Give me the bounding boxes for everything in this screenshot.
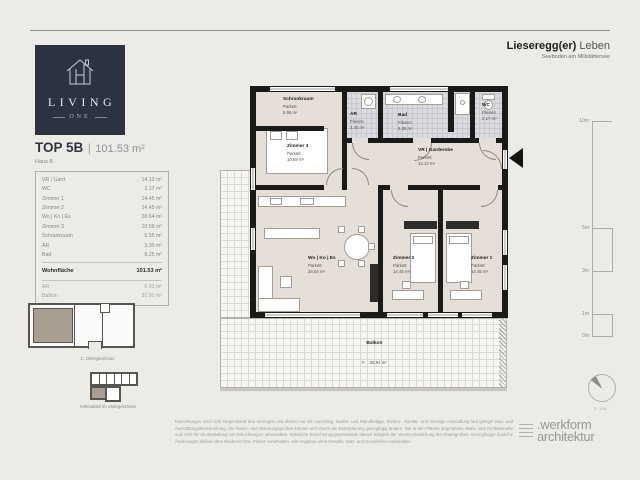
wall-segment (448, 92, 454, 132)
table-row: Balkon32.91 m² (42, 292, 162, 301)
room-area: 2.17 m² (482, 116, 497, 122)
table-row: Zimmer 310.59 m² (42, 223, 162, 232)
scale-label: 3m (575, 268, 589, 274)
cellar-cell (92, 374, 100, 384)
scale-bar-line (612, 228, 613, 272)
row-area: 3.30 m² (144, 242, 162, 251)
row-area: 6.01 m² (144, 283, 162, 292)
unit-separator: | (88, 141, 91, 155)
kitchen-island-symbol (264, 228, 320, 239)
balcony-hatch-edge (499, 319, 506, 387)
entrance-arrow-icon (509, 148, 523, 168)
row-area: 10.59 m² (142, 223, 162, 232)
wall-segment (250, 86, 256, 318)
studio-logo: .werkform architektur (537, 419, 594, 443)
unit-name: TOP 5B (35, 140, 83, 155)
room-label-vr-garderobe: VR | Garderobe Parkett 14.13 m² (418, 148, 453, 167)
row-area: 32.91 m² (142, 292, 162, 301)
cooktop-symbol (270, 198, 282, 205)
table-separator (42, 280, 162, 281)
address-line (519, 436, 533, 437)
cellar-cell (107, 374, 115, 384)
room-label-schrankraum: Schrankraum Parkett 5.55 m² (283, 97, 314, 116)
cellar-cell (105, 386, 121, 402)
room-name: Zimmer 2 (393, 256, 414, 263)
key-plan-notch (88, 341, 102, 349)
basin-symbol (418, 96, 426, 103)
row-area: 14.45 m² (142, 195, 162, 204)
window-symbol (387, 313, 423, 317)
key-plan-floor-caption: 1. Obergeschoss (60, 356, 135, 361)
kitchen-sink-symbol (300, 198, 314, 205)
chair-symbol (402, 281, 411, 289)
wall-segment (368, 138, 383, 143)
room-area: 8.25 m² (398, 126, 413, 132)
unit-area: 101.53 m² (95, 143, 145, 155)
washing-machine-drum-symbol (364, 97, 373, 106)
entrance-opening (503, 150, 507, 169)
room-area: 14.13 m² (418, 161, 453, 167)
room-label-zimmer1: Zimmer 1 Parkett 14.45 m² (471, 256, 492, 275)
cellar-cell (122, 374, 130, 384)
wardrobe-symbol (446, 221, 479, 229)
window-symbol (462, 313, 492, 317)
room-label-bad: Bad Fliesen 8.25 m² (398, 113, 413, 132)
sofa-symbol (258, 298, 300, 312)
row-name: Schrankraum (42, 232, 73, 241)
room-area: 3.30 m² (350, 125, 365, 131)
table-row: WC2.17 m² (42, 185, 162, 194)
pillow-symbol (286, 131, 298, 140)
room-name: AR (350, 112, 365, 119)
table-row: VR | Gard.14.13 m² (42, 176, 162, 185)
wall-segment (378, 185, 383, 318)
table-row: AR3.30 m² (42, 242, 162, 251)
brand-name: LIVING (48, 95, 116, 110)
scale-label: 0m (575, 333, 589, 339)
address-line (519, 428, 533, 429)
room-area: 5.55 m² (283, 110, 314, 116)
wall-segment (383, 138, 413, 143)
wardrobe-symbol (370, 264, 378, 302)
wall-segment (408, 185, 480, 190)
desk-symbol (392, 290, 424, 300)
room-name: VR | Garderobe (418, 148, 453, 155)
cellar-cell (130, 374, 137, 384)
scale-note: 1 : 100 (578, 406, 622, 411)
key-plan-cellar (88, 368, 140, 398)
address-line (519, 424, 533, 425)
wall-segment (470, 92, 475, 138)
table-row: AR6.01 m² (42, 283, 162, 292)
room-name: WC (482, 103, 497, 110)
room-name: Schrankraum (283, 97, 314, 104)
scale-tick (592, 121, 612, 122)
cellar-compartments (90, 372, 138, 386)
chair-symbol (460, 281, 469, 289)
room-material: F. (362, 360, 365, 365)
wall-segment (431, 138, 479, 143)
room-area: 32.91 m² (370, 360, 387, 365)
scale-label: 1m (575, 311, 589, 317)
scale-label: 5m (575, 225, 589, 231)
row-area: 8.25 m² (144, 251, 162, 260)
table-row: Schrankraum5.55 m² (42, 232, 162, 241)
dash-right (95, 117, 107, 118)
room-area-table: VR | Gard.14.13 m² WC2.17 m² Zimmer 114.… (35, 171, 169, 306)
row-name: AR (42, 283, 49, 292)
wall-segment (256, 126, 324, 131)
key-plan-floor (28, 303, 135, 348)
brand-subname-text: ONE (69, 114, 90, 120)
legal-disclaimer: Einrichtungen sind nicht Gegenstand des … (175, 419, 513, 446)
project-title-light: Leben (576, 40, 610, 52)
wall-segment (438, 185, 443, 318)
row-name: WC (42, 185, 51, 194)
row-name: Zimmer 3 (42, 223, 64, 232)
studio-address-lines (519, 424, 533, 440)
key-plan-wall (74, 305, 75, 346)
row-name: Wo | Ko | Es (42, 213, 71, 222)
chair-symbol (358, 226, 365, 233)
room-label-wc: WC Fliesen 2.17 m² (482, 103, 497, 122)
window-symbol (503, 230, 507, 255)
row-name: AR (42, 242, 49, 251)
wardrobe-symbol (404, 221, 437, 229)
unit-title-line: TOP 5B | 101.53 m² (35, 139, 145, 157)
scale-tick (592, 271, 612, 272)
table-row: Wo | Ko | Es28.64 m² (42, 213, 162, 222)
pillow-symbol (270, 131, 282, 140)
row-area: 14.13 m² (142, 176, 162, 185)
window-symbol (390, 87, 448, 91)
pillow-symbol (413, 236, 433, 244)
basin-symbol (393, 96, 401, 103)
window-symbol (265, 313, 360, 317)
total-area: 101.53 m² (137, 265, 163, 277)
room-area: 10.59 m² (287, 157, 308, 163)
chair-symbol (338, 260, 345, 267)
wall-segment (496, 138, 502, 143)
window-symbol (251, 168, 255, 190)
wall-segment (250, 185, 324, 190)
room-label-balkon: Balkon F. 32.91 m² (362, 341, 387, 371)
scale-tick (592, 228, 612, 229)
scale-label: 10m (575, 118, 589, 124)
row-area: 28.64 m² (142, 213, 162, 222)
room-area: 14.45 m² (393, 269, 414, 275)
studio-name: architektur (537, 431, 594, 443)
pillow-symbol (449, 236, 469, 244)
room-name: Balkon (362, 341, 387, 348)
window-symbol (270, 87, 335, 91)
key-plan-cellar-caption: Kellerabteil im Untergeschoss (58, 404, 158, 409)
room-name: Wo | Ko | Es (308, 256, 336, 263)
dash-left (53, 117, 65, 118)
row-area: 2.17 m² (144, 185, 162, 194)
dining-table-symbol (344, 234, 370, 260)
desk-symbol (450, 290, 482, 300)
unit-subtitle: Haus B (35, 159, 145, 165)
table-separator (42, 262, 162, 263)
row-name: Bad (42, 251, 51, 260)
project-subtitle: Seeboden am Millstättersee (507, 54, 610, 60)
project-title: Lieseregg(er) Leben (507, 40, 610, 52)
balcony-shadow (220, 388, 507, 391)
project-title-bold: Lieseregg(er) (507, 40, 577, 52)
row-name: Zimmer 2 (42, 204, 64, 213)
chair-symbol (358, 260, 365, 267)
north-arrow-icon (586, 372, 618, 409)
table-row: Zimmer 114.45 m² (42, 195, 162, 204)
table-row: Bad8.25 m² (42, 251, 162, 260)
cellar-cell (115, 374, 123, 384)
room-area: 28.64 m² (308, 269, 336, 275)
project-header: Lieseregg(er) Leben Seeboden am Millstät… (507, 40, 610, 60)
room-name: Zimmer 1 (471, 256, 492, 263)
wall-segment (378, 92, 383, 138)
brand-logo: LIVING ONE (35, 45, 125, 135)
chair-symbol (338, 226, 345, 233)
room-name: Bad (398, 113, 413, 120)
row-name: Balkon (42, 292, 58, 301)
wall-segment (498, 185, 502, 190)
window-symbol (251, 228, 255, 250)
room-label-zimmer3: Zimmer 3 Parkett 10.59 m² (287, 144, 308, 163)
scale-tick (592, 336, 612, 337)
address-line (519, 432, 533, 433)
row-name: VR | Gard. (42, 176, 66, 185)
shower-drain-symbol (460, 100, 465, 105)
table-total-row: Wohnfläche101.53 m² (42, 265, 162, 277)
total-name: Wohnfläche (42, 265, 74, 277)
top-rule (30, 30, 610, 31)
brand-subname: ONE (53, 114, 106, 120)
house-icon (63, 55, 97, 89)
floorplan-sheet: Lieseregg(er) Leben Seeboden am Millstät… (0, 0, 640, 480)
table-row: Zimmer 214.45 m² (42, 204, 162, 213)
room-label-ar: AR Fliesen 3.30 m² (350, 112, 365, 131)
key-plan-highlighted-unit (33, 308, 73, 343)
unit-title-block: TOP 5B | 101.53 m² Haus B (35, 139, 145, 165)
row-area: 14.45 m² (142, 204, 162, 213)
row-area: 5.55 m² (144, 232, 162, 241)
room-area: 14.45 m² (471, 269, 492, 275)
room-label-wohnen: Wo | Ko | Es Parkett 28.64 m² (308, 256, 336, 275)
window-symbol (428, 313, 458, 317)
cellar-cell (100, 374, 108, 384)
key-plan-stair-marker (100, 303, 110, 313)
wall-segment (383, 185, 390, 190)
balcony-left (220, 170, 251, 318)
scale-bar-line (612, 314, 613, 337)
coffee-table-symbol (280, 276, 292, 288)
room-label-zimmer2: Zimmer 2 Parkett 14.45 m² (393, 256, 414, 275)
scale-tick (592, 314, 612, 315)
row-name: Zimmer 1 (42, 195, 64, 204)
window-symbol (503, 265, 507, 290)
chair-symbol (368, 243, 375, 250)
room-name: Zimmer 3 (287, 144, 308, 151)
